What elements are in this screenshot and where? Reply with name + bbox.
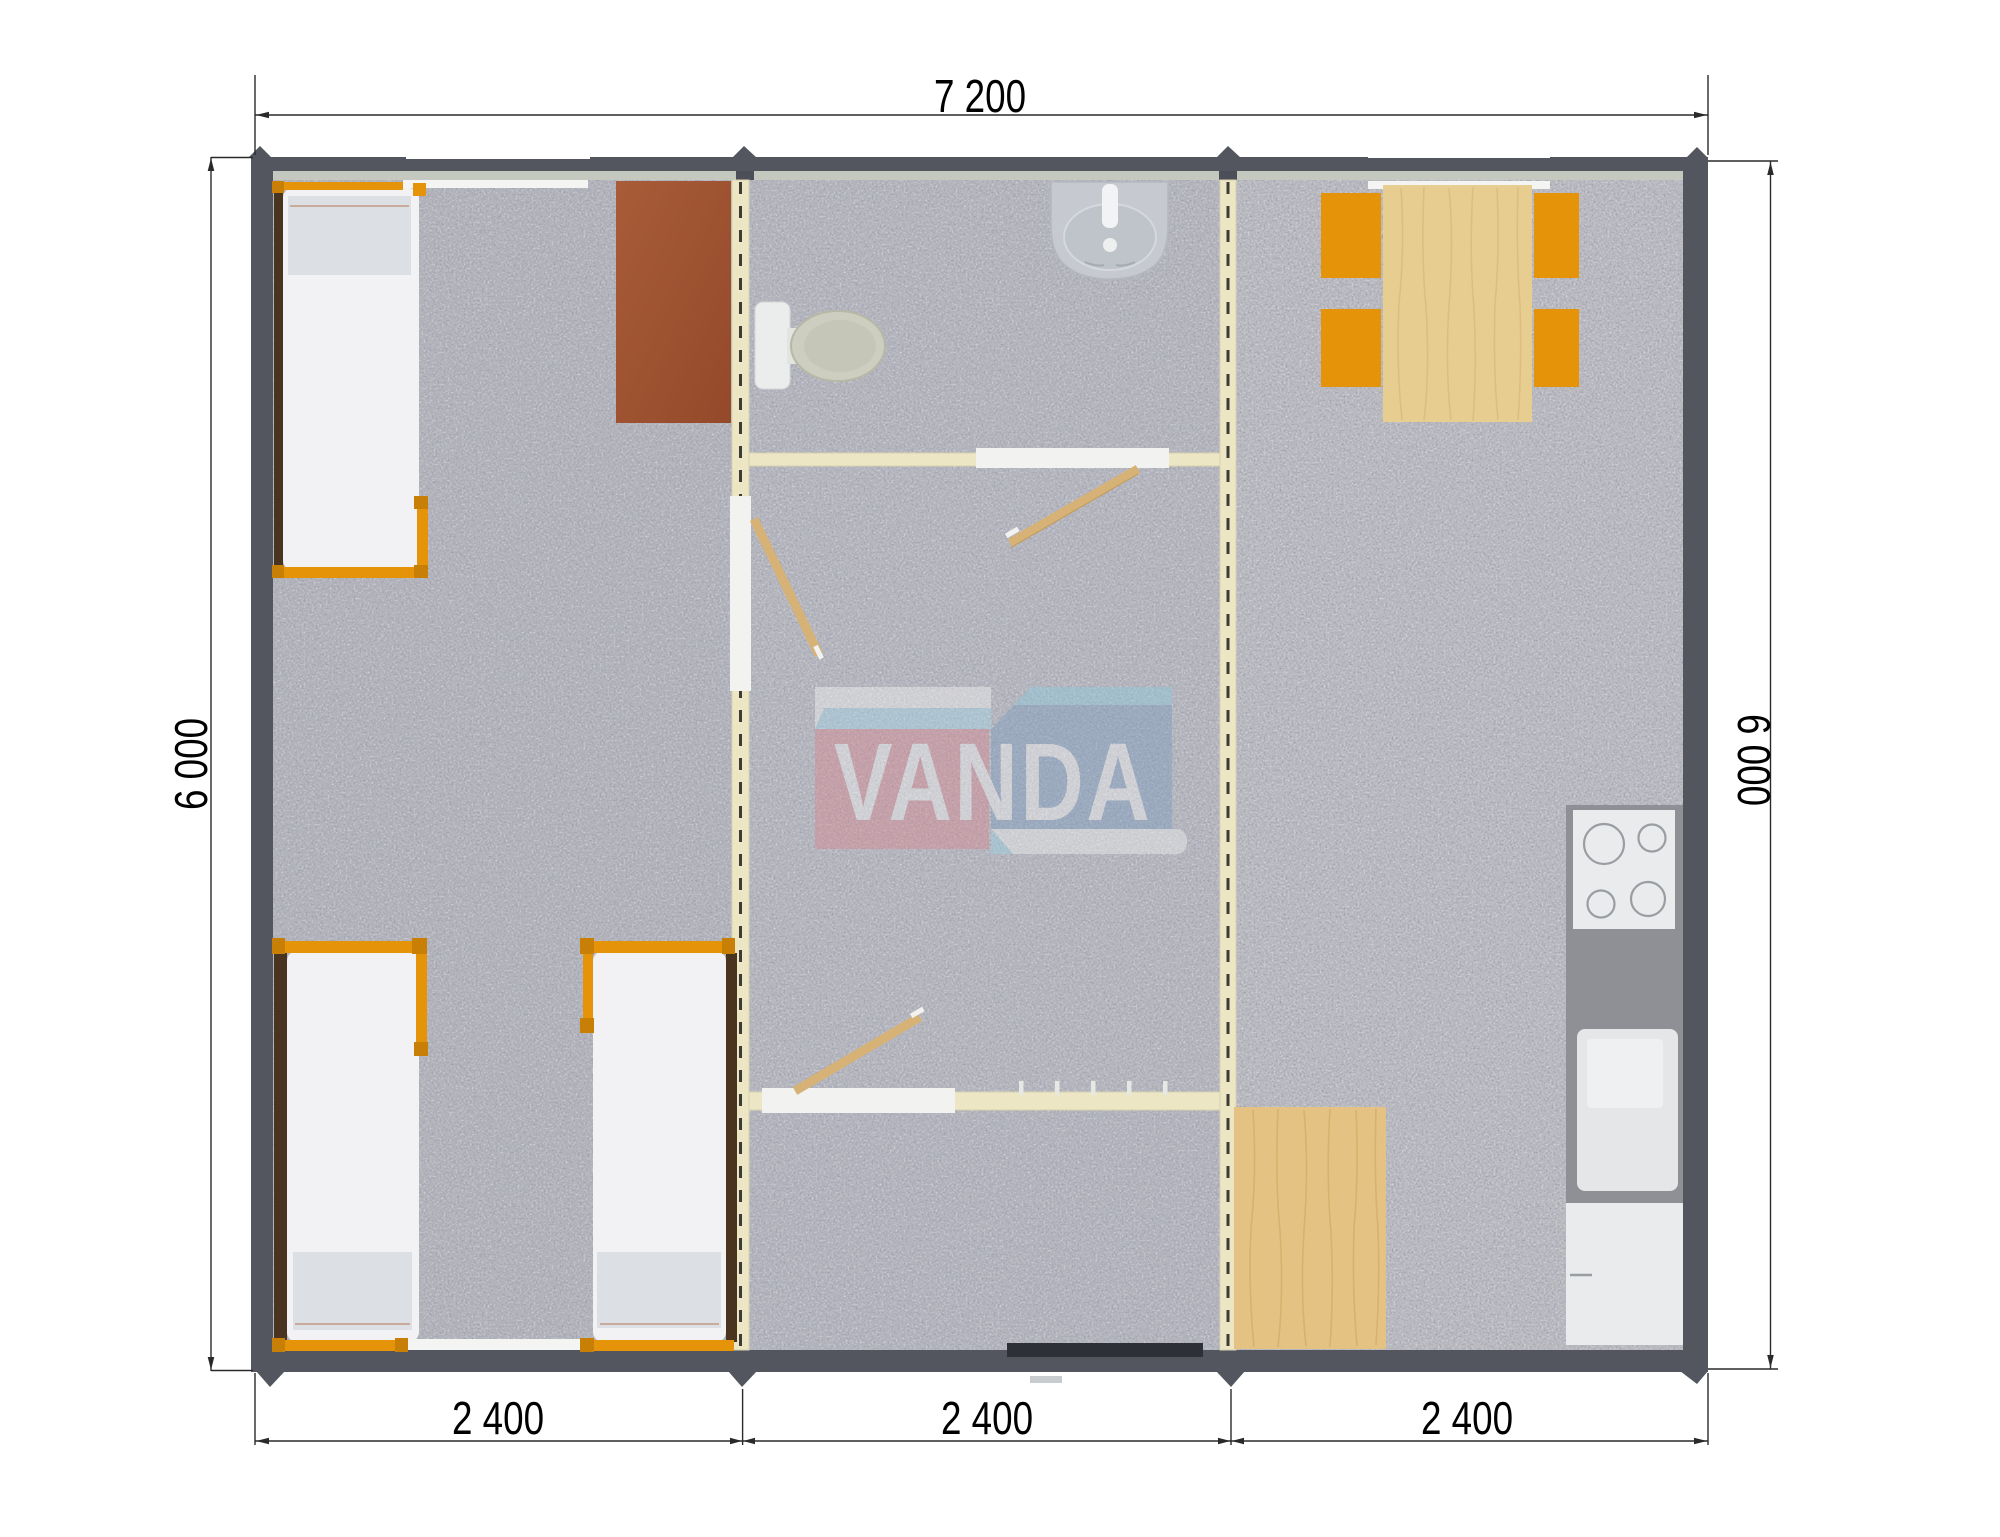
svg-text:2 400: 2 400 (452, 1392, 544, 1444)
svg-text:6 000: 6 000 (1728, 714, 1780, 806)
svg-text:7 200: 7 200 (934, 70, 1026, 122)
svg-text:VANDA: VANDA (834, 722, 1152, 845)
svg-text:6 000: 6 000 (165, 718, 217, 810)
svg-text:2 400: 2 400 (941, 1392, 1033, 1444)
svg-text:2 400: 2 400 (1421, 1392, 1513, 1444)
